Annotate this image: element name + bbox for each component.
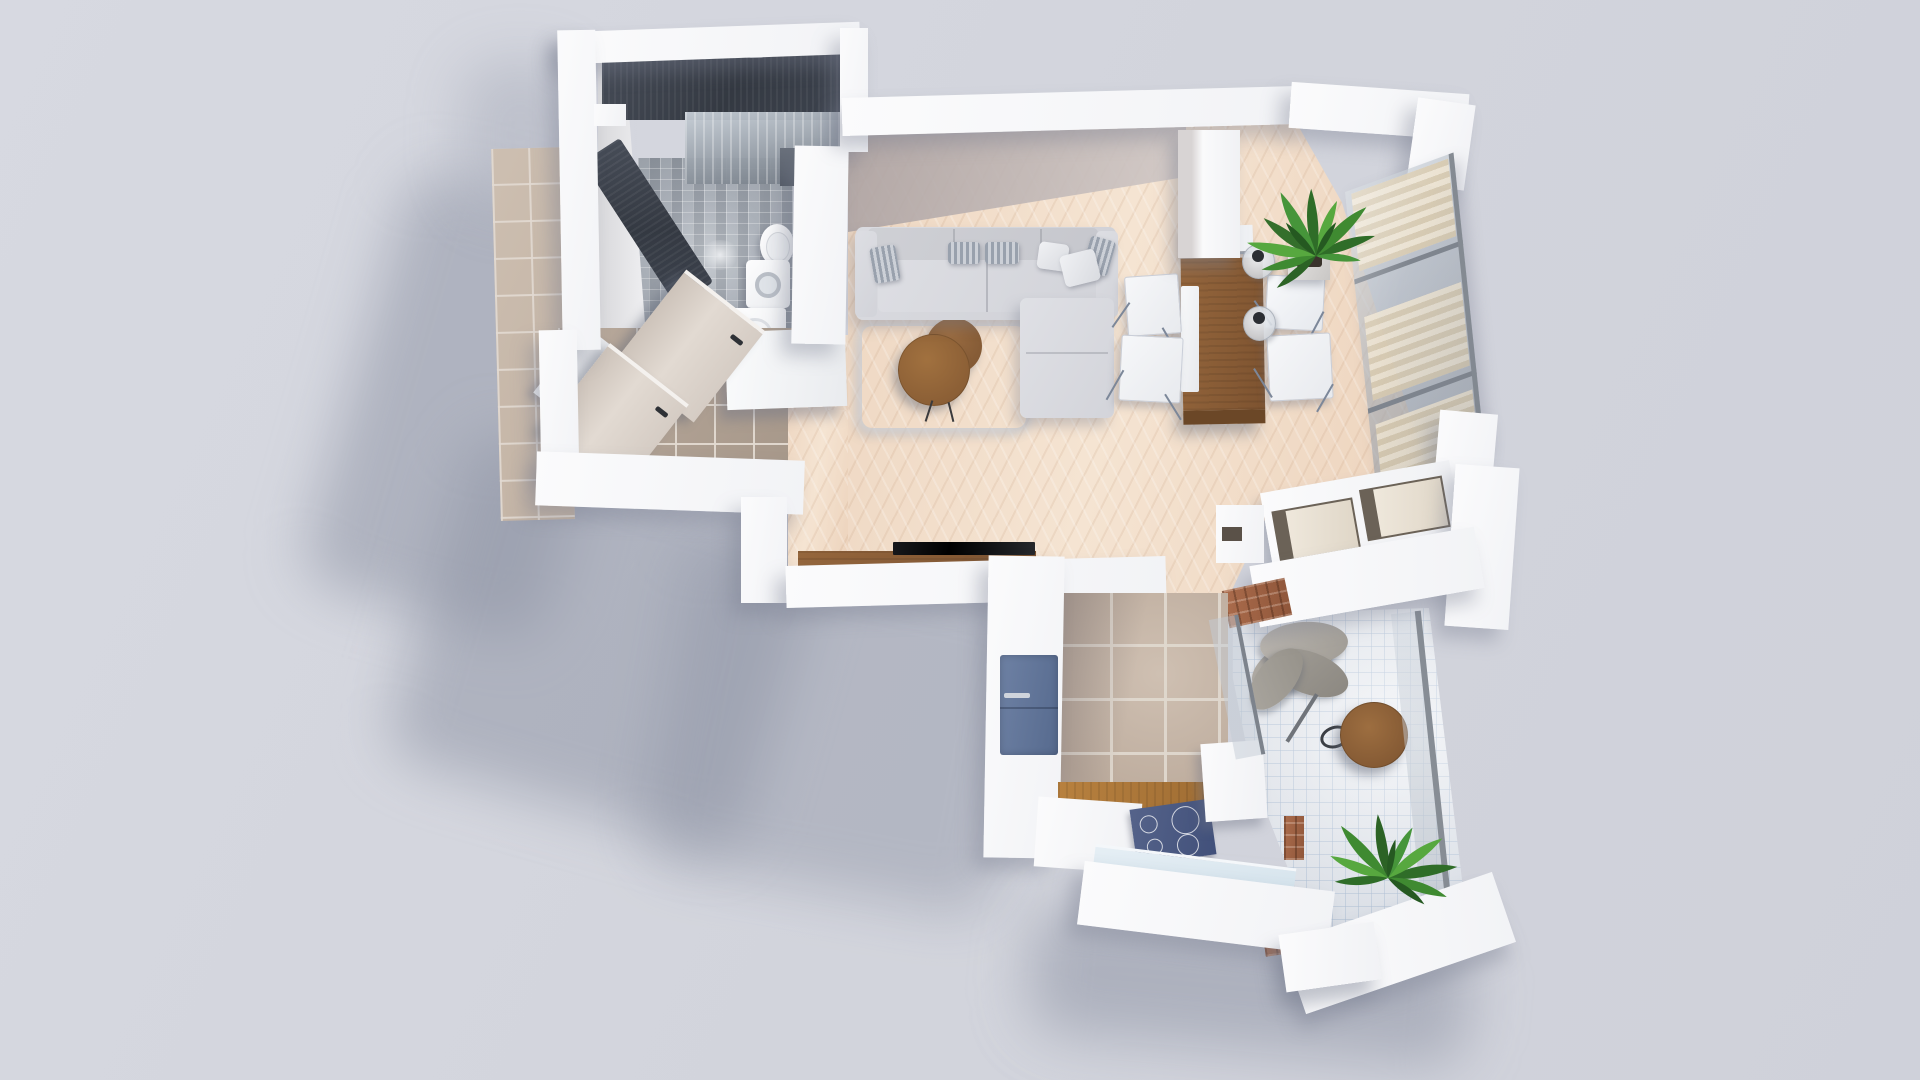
coffee-table-large bbox=[898, 334, 970, 406]
hob-ring bbox=[1139, 814, 1159, 834]
sofa-chaise-seam bbox=[1026, 352, 1108, 354]
dining-chair bbox=[1124, 273, 1182, 337]
floorplan-scene bbox=[0, 0, 1920, 1080]
sofa-chaise bbox=[1020, 298, 1114, 418]
hob-ring bbox=[1170, 804, 1202, 836]
wall-west-bathroom bbox=[557, 30, 601, 351]
shower-glass-edge bbox=[780, 148, 795, 186]
sofa-pillow-striped bbox=[948, 242, 980, 264]
sofa-seam bbox=[986, 260, 988, 312]
refrigerator bbox=[1000, 655, 1058, 755]
wall-divider-bath-living bbox=[791, 146, 848, 345]
door-handle-icon bbox=[730, 334, 744, 347]
palm-plant-top bbox=[1218, 118, 1413, 293]
washing-machine-door bbox=[755, 272, 781, 298]
pendant-lamp-cap bbox=[1253, 312, 1265, 324]
bistro-table bbox=[1340, 702, 1408, 768]
shower-drain bbox=[700, 240, 740, 270]
tv bbox=[893, 542, 1035, 555]
wall-stub bbox=[594, 104, 626, 126]
fridge-seam bbox=[1000, 707, 1058, 709]
table-bench-runner bbox=[1181, 286, 1199, 392]
dining-chair bbox=[1266, 332, 1333, 401]
door-handle-icon bbox=[655, 406, 669, 419]
toilet-seat bbox=[766, 232, 790, 262]
dining-chair bbox=[1118, 334, 1183, 403]
wall-southwest-living bbox=[741, 497, 787, 603]
palm-plant-balcony bbox=[1288, 790, 1488, 960]
shoe-cabinet bbox=[1216, 505, 1264, 563]
fridge-handle-icon bbox=[1004, 693, 1030, 698]
sofa-pillow-striped bbox=[985, 242, 1019, 264]
cabinet-slot bbox=[1222, 527, 1242, 541]
